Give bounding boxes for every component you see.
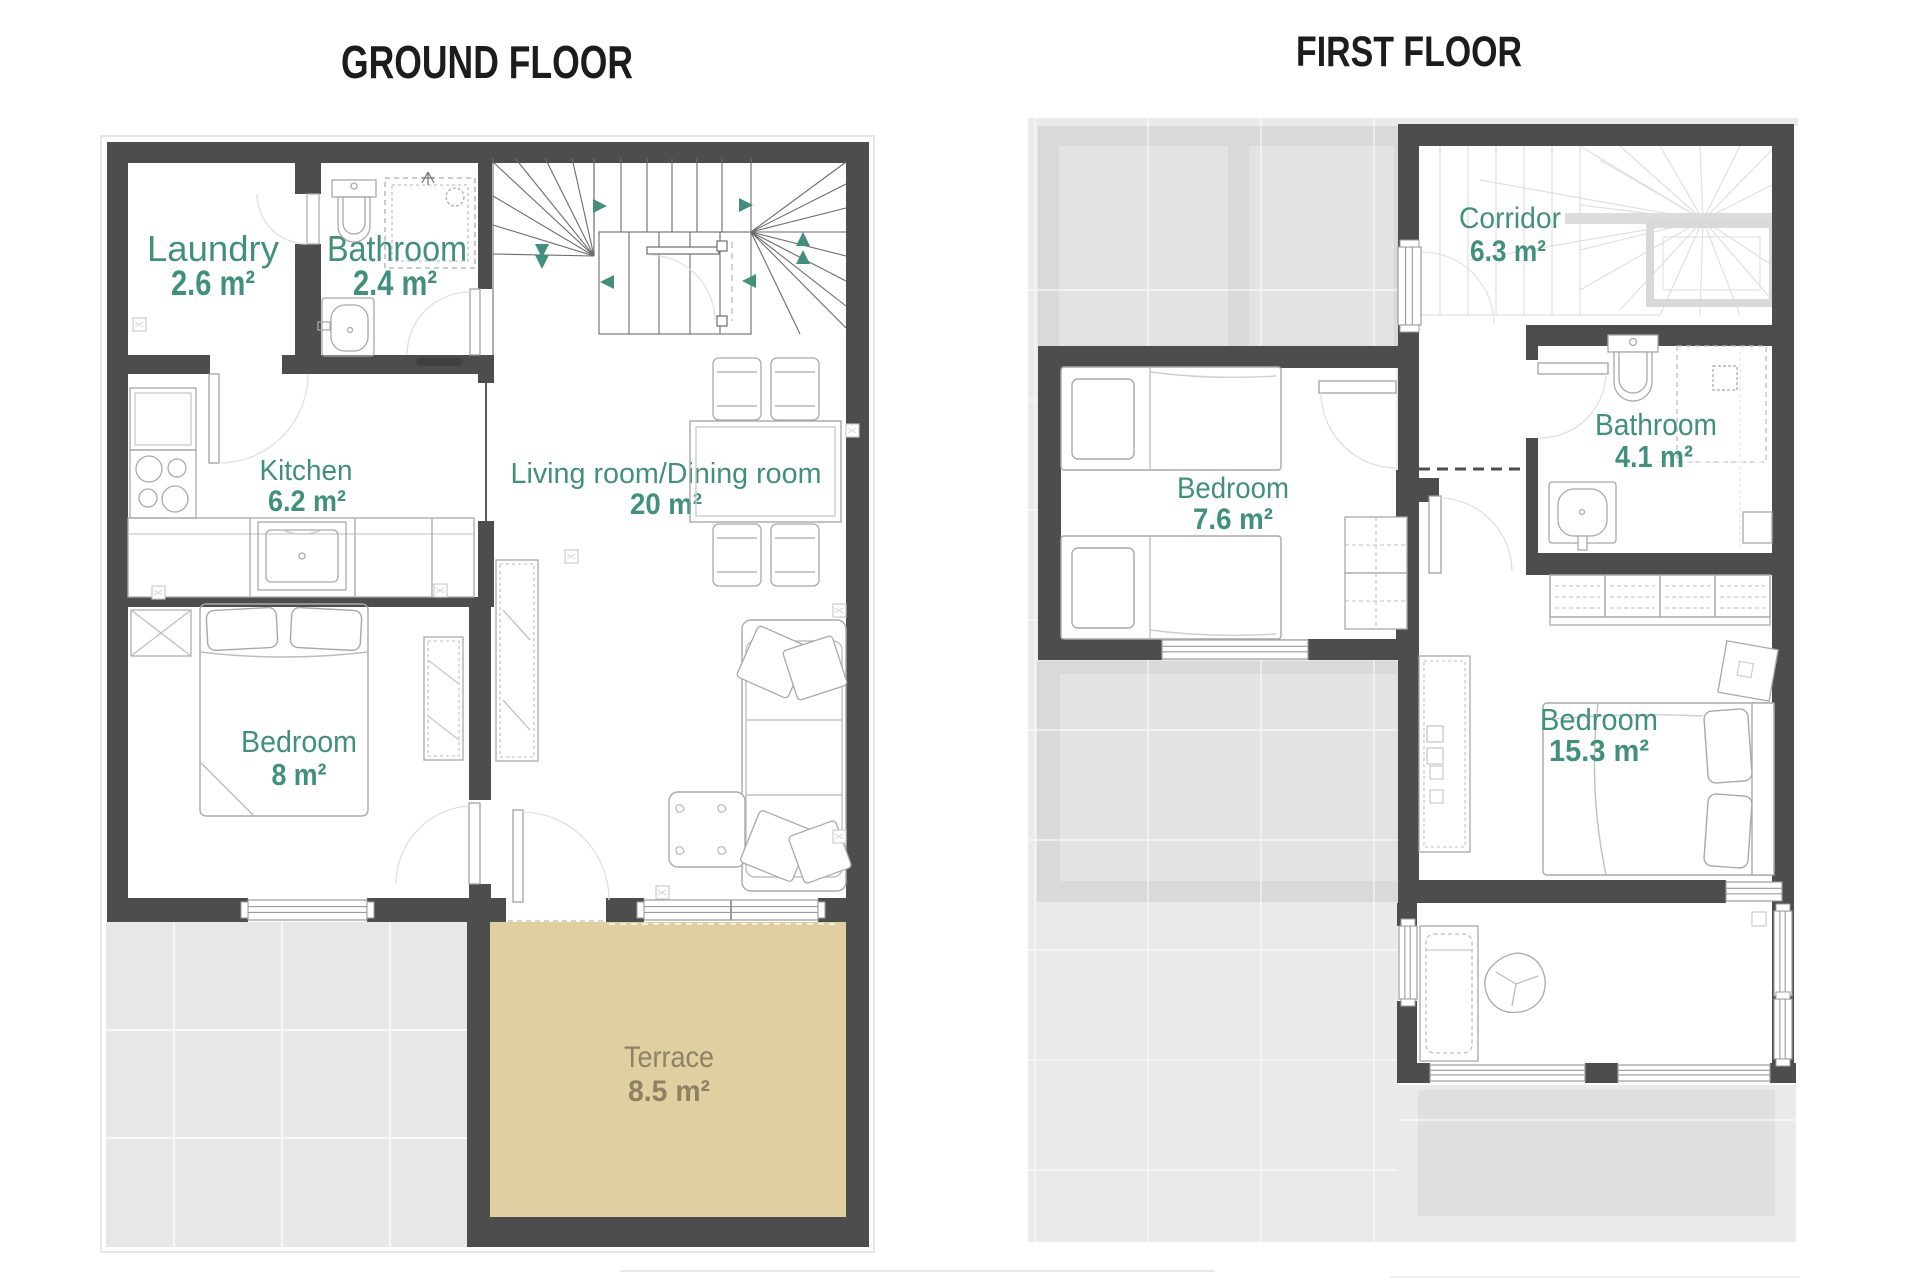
svg-text:6.3 m²: 6.3 m² <box>1470 235 1546 268</box>
svg-text:4.1 m²: 4.1 m² <box>1615 439 1693 474</box>
svg-text:Terrace: Terrace <box>624 1041 714 1074</box>
svg-text:Laundry: Laundry <box>147 228 279 269</box>
svg-text:2.4 m²: 2.4 m² <box>353 264 437 303</box>
svg-text:8.5 m²: 8.5 m² <box>628 1075 710 1108</box>
svg-text:8 m²: 8 m² <box>272 757 327 792</box>
svg-text:7.6 m²: 7.6 m² <box>1193 503 1273 536</box>
svg-text:Corridor: Corridor <box>1459 202 1561 235</box>
svg-text:Bedroom: Bedroom <box>241 724 357 759</box>
svg-text:Bathroom: Bathroom <box>327 228 467 269</box>
svg-text:15.3 m²: 15.3 m² <box>1549 733 1649 768</box>
svg-text:FIRST FLOOR: FIRST FLOOR <box>1296 28 1522 76</box>
svg-text:Kitchen: Kitchen <box>260 455 353 487</box>
svg-text:GROUND FLOOR: GROUND FLOOR <box>341 36 633 88</box>
svg-text:2.6 m²: 2.6 m² <box>171 264 255 303</box>
svg-text:Bedroom: Bedroom <box>1177 472 1289 505</box>
svg-text:20 m²: 20 m² <box>630 488 702 521</box>
svg-text:6.2 m²: 6.2 m² <box>268 485 346 518</box>
svg-text:Bathroom: Bathroom <box>1595 407 1717 442</box>
svg-text:Living room/Dining room: Living room/Dining room <box>511 458 822 490</box>
svg-text:Bedroom: Bedroom <box>1540 702 1658 737</box>
